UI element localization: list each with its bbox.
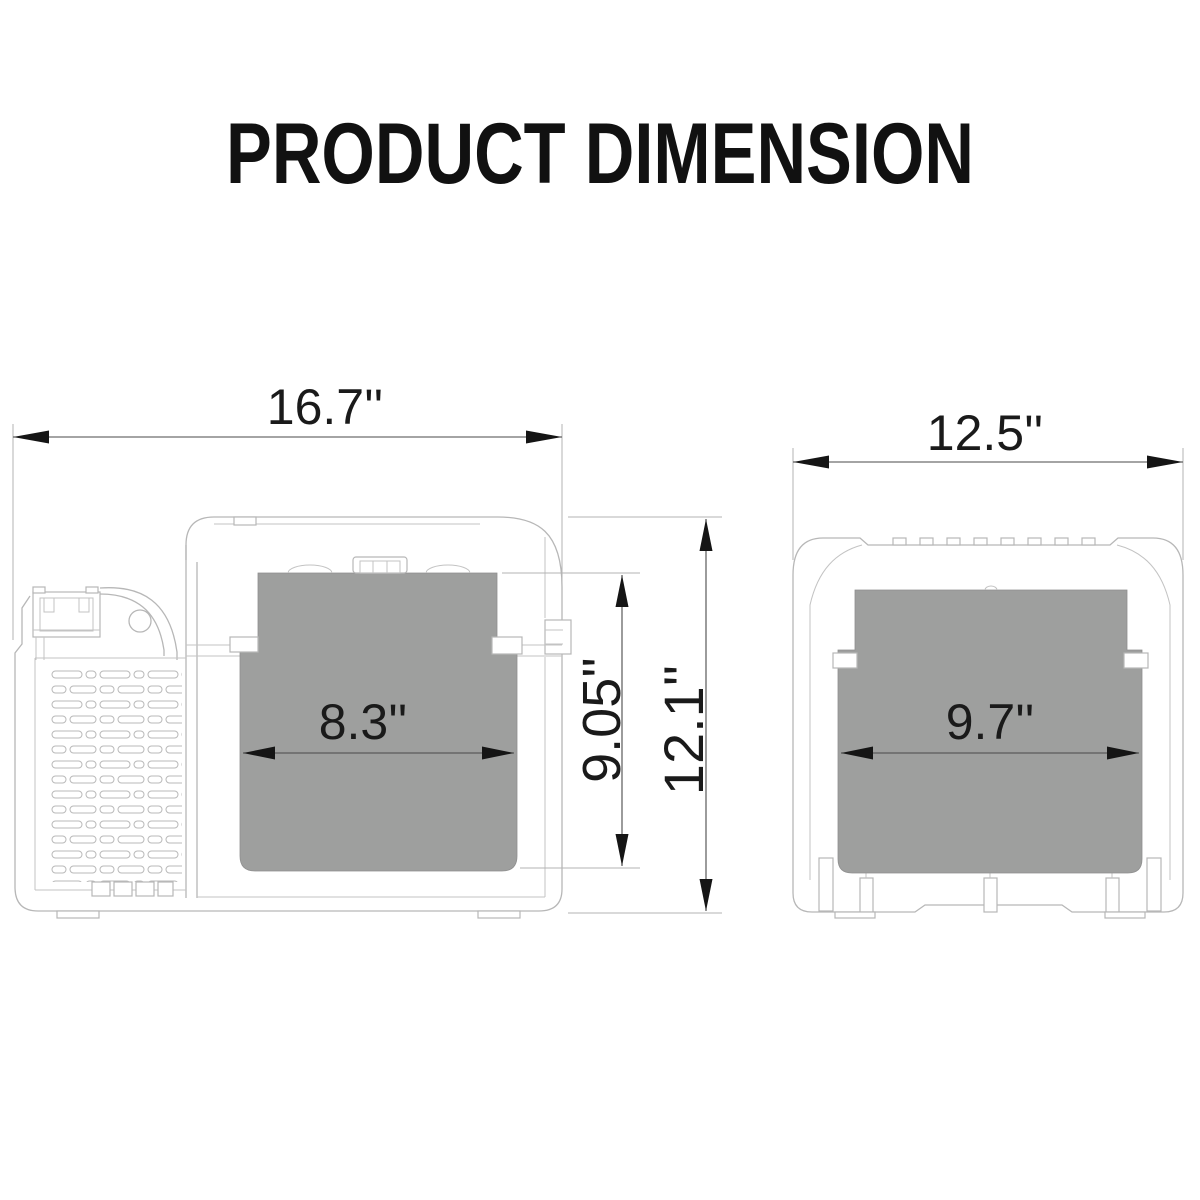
- lid-knob: [353, 557, 407, 573]
- side-view-foot-left: [57, 911, 99, 918]
- dim-label-side-overall-width: 16.7'': [267, 379, 383, 435]
- lid-top-notch: [234, 517, 256, 525]
- dim-label-front-overall-width: 12.5'': [927, 405, 1043, 461]
- arrowhead: [526, 431, 562, 444]
- front-view-foot-left: [835, 912, 875, 918]
- arrowhead: [13, 431, 49, 444]
- hinge-notch-right: [1124, 653, 1148, 668]
- product-dimension-figure: PRODUCT DIMENSION: [0, 0, 1200, 1200]
- front-view-foot-right: [1105, 912, 1145, 918]
- hinge-notch-right: [492, 637, 522, 654]
- side-view-handle: [33, 587, 177, 660]
- side-view-drawing: 16.7'' 8.3'' 9.05'' 12.1'': [13, 379, 722, 918]
- dimension-compartment-depth: 9.05'': [502, 573, 640, 868]
- arrowhead: [616, 575, 629, 607]
- dimension-front-overall-width: 12.5'': [793, 405, 1183, 560]
- page-title: PRODUCT DIMENSION: [226, 106, 974, 202]
- hinge-notch-left: [230, 637, 258, 652]
- arrowhead: [700, 519, 713, 551]
- dim-label-side-opening-width: 8.3'': [319, 694, 408, 750]
- arrowhead: [700, 879, 713, 911]
- arrowhead: [1147, 456, 1183, 469]
- side-view-foot-right: [478, 911, 520, 918]
- front-view-drawing: 12.5'' 9.7'': [793, 405, 1183, 918]
- side-latch: [545, 620, 571, 654]
- side-view-vent-grille: [35, 658, 186, 896]
- lid-nub: [985, 586, 997, 590]
- dim-label-compartment-depth: 9.05'': [572, 657, 632, 783]
- top-button-notches: [893, 538, 1095, 545]
- arrowhead: [616, 834, 629, 866]
- handle-pivot: [129, 610, 151, 632]
- diagram-svg: PRODUCT DIMENSION: [0, 0, 1200, 1200]
- arrowhead: [793, 456, 829, 469]
- hinge-notch-left: [833, 653, 857, 668]
- dim-label-front-opening-width: 9.7'': [946, 694, 1035, 750]
- dim-label-overall-height: 12.1'': [652, 665, 715, 795]
